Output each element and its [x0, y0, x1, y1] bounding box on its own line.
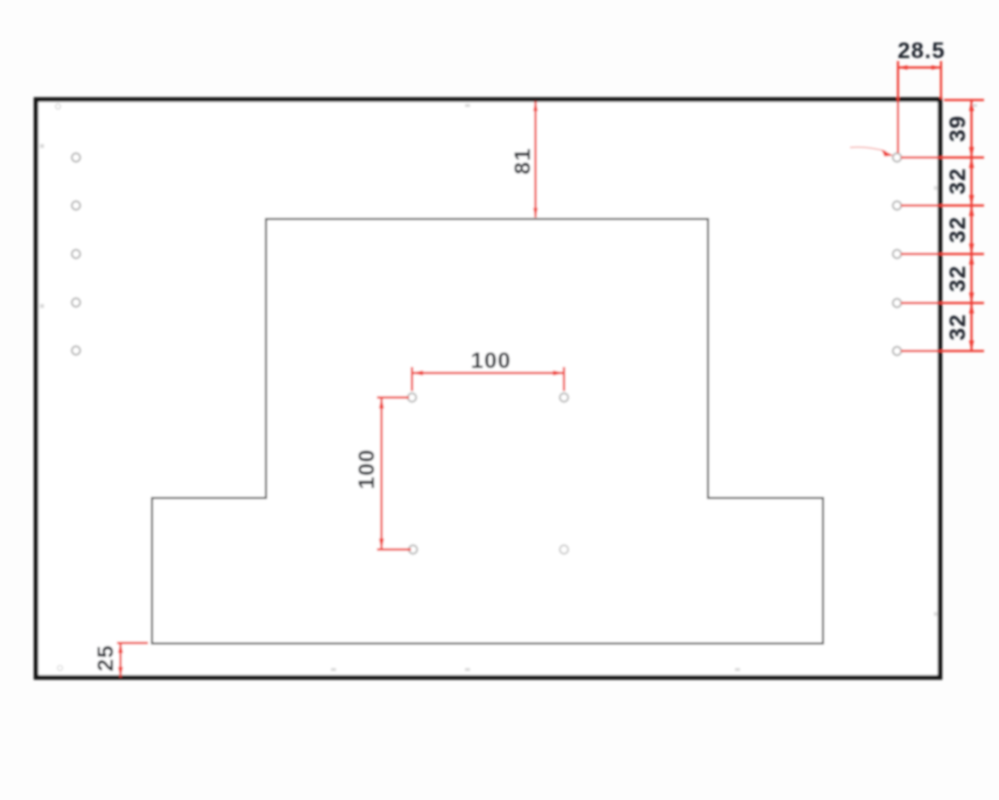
- svg-text:81: 81: [510, 147, 535, 174]
- svg-text:100: 100: [471, 348, 512, 373]
- svg-text:32: 32: [945, 265, 970, 292]
- svg-text:32: 32: [945, 167, 970, 194]
- svg-text:28.5: 28.5: [898, 38, 946, 63]
- svg-text:100: 100: [354, 449, 379, 490]
- svg-text:39: 39: [945, 115, 970, 142]
- svg-text:32: 32: [945, 313, 970, 340]
- svg-text:25: 25: [93, 644, 118, 671]
- svg-text:32: 32: [945, 216, 970, 243]
